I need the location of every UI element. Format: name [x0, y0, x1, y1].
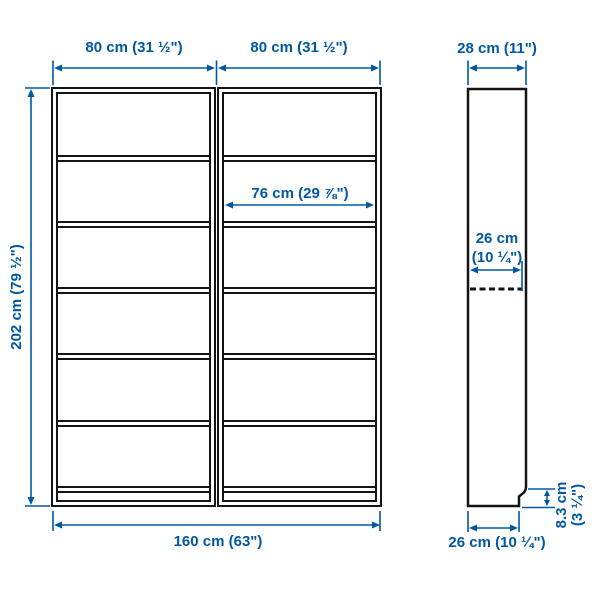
label-total-depth: 28 cm (11")	[457, 40, 537, 57]
extension-lines	[25, 61, 555, 533]
label-plinth-height-line1: 8.3 cm	[553, 482, 570, 529]
label-shelf-depth-line1: 26 cm	[476, 230, 519, 247]
side-view	[468, 89, 526, 506]
right-unit-shelves	[223, 156, 376, 492]
label-plinth-height-line2: (3 ¼")	[569, 484, 586, 526]
front-view	[52, 88, 381, 506]
side-profile-outline	[468, 89, 526, 506]
left-unit-shelves	[57, 156, 210, 492]
left-unit-inner-frame	[57, 93, 210, 501]
dimension-arrowheads	[28, 65, 551, 532]
label-inner-shelf-width: 76 cm (29 ⅞")	[251, 185, 348, 202]
left-unit-outer-frame	[52, 88, 215, 506]
label-unit-width-right: 80 cm (31 ½")	[250, 39, 347, 56]
dimension-labels: 80 cm (31 ½") 80 cm (31 ½") 28 cm (11") …	[8, 39, 586, 551]
diagram-svg: 80 cm (31 ½") 80 cm (31 ½") 28 cm (11") …	[0, 0, 600, 600]
label-total-width: 160 cm (63")	[174, 533, 263, 550]
bookcase-dimension-diagram: 80 cm (31 ½") 80 cm (31 ½") 28 cm (11") …	[0, 0, 600, 600]
label-shelf-depth-line2: (10 ¼")	[472, 249, 522, 266]
right-unit-outer-frame	[218, 88, 381, 506]
label-base-depth: 26 cm (10 ¼")	[448, 534, 545, 551]
right-unit-inner-frame	[223, 93, 376, 501]
label-total-height: 202 cm (79 ½")	[8, 244, 25, 350]
label-unit-width-left: 80 cm (31 ½")	[85, 39, 182, 56]
dimension-lines	[25, 61, 555, 533]
